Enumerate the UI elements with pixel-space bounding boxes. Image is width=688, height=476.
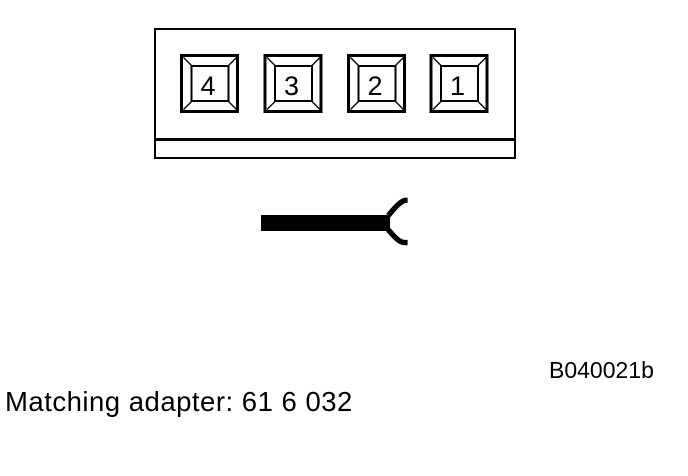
svg-text:3: 3 — [284, 71, 299, 101]
svg-text:B040021b: B040021b — [549, 357, 654, 383]
svg-text:1: 1 — [450, 71, 465, 101]
svg-text:2: 2 — [367, 71, 382, 101]
svg-text:4: 4 — [200, 71, 215, 101]
svg-text:Matching adapter: 61 6 032: Matching adapter: 61 6 032 — [5, 386, 353, 417]
